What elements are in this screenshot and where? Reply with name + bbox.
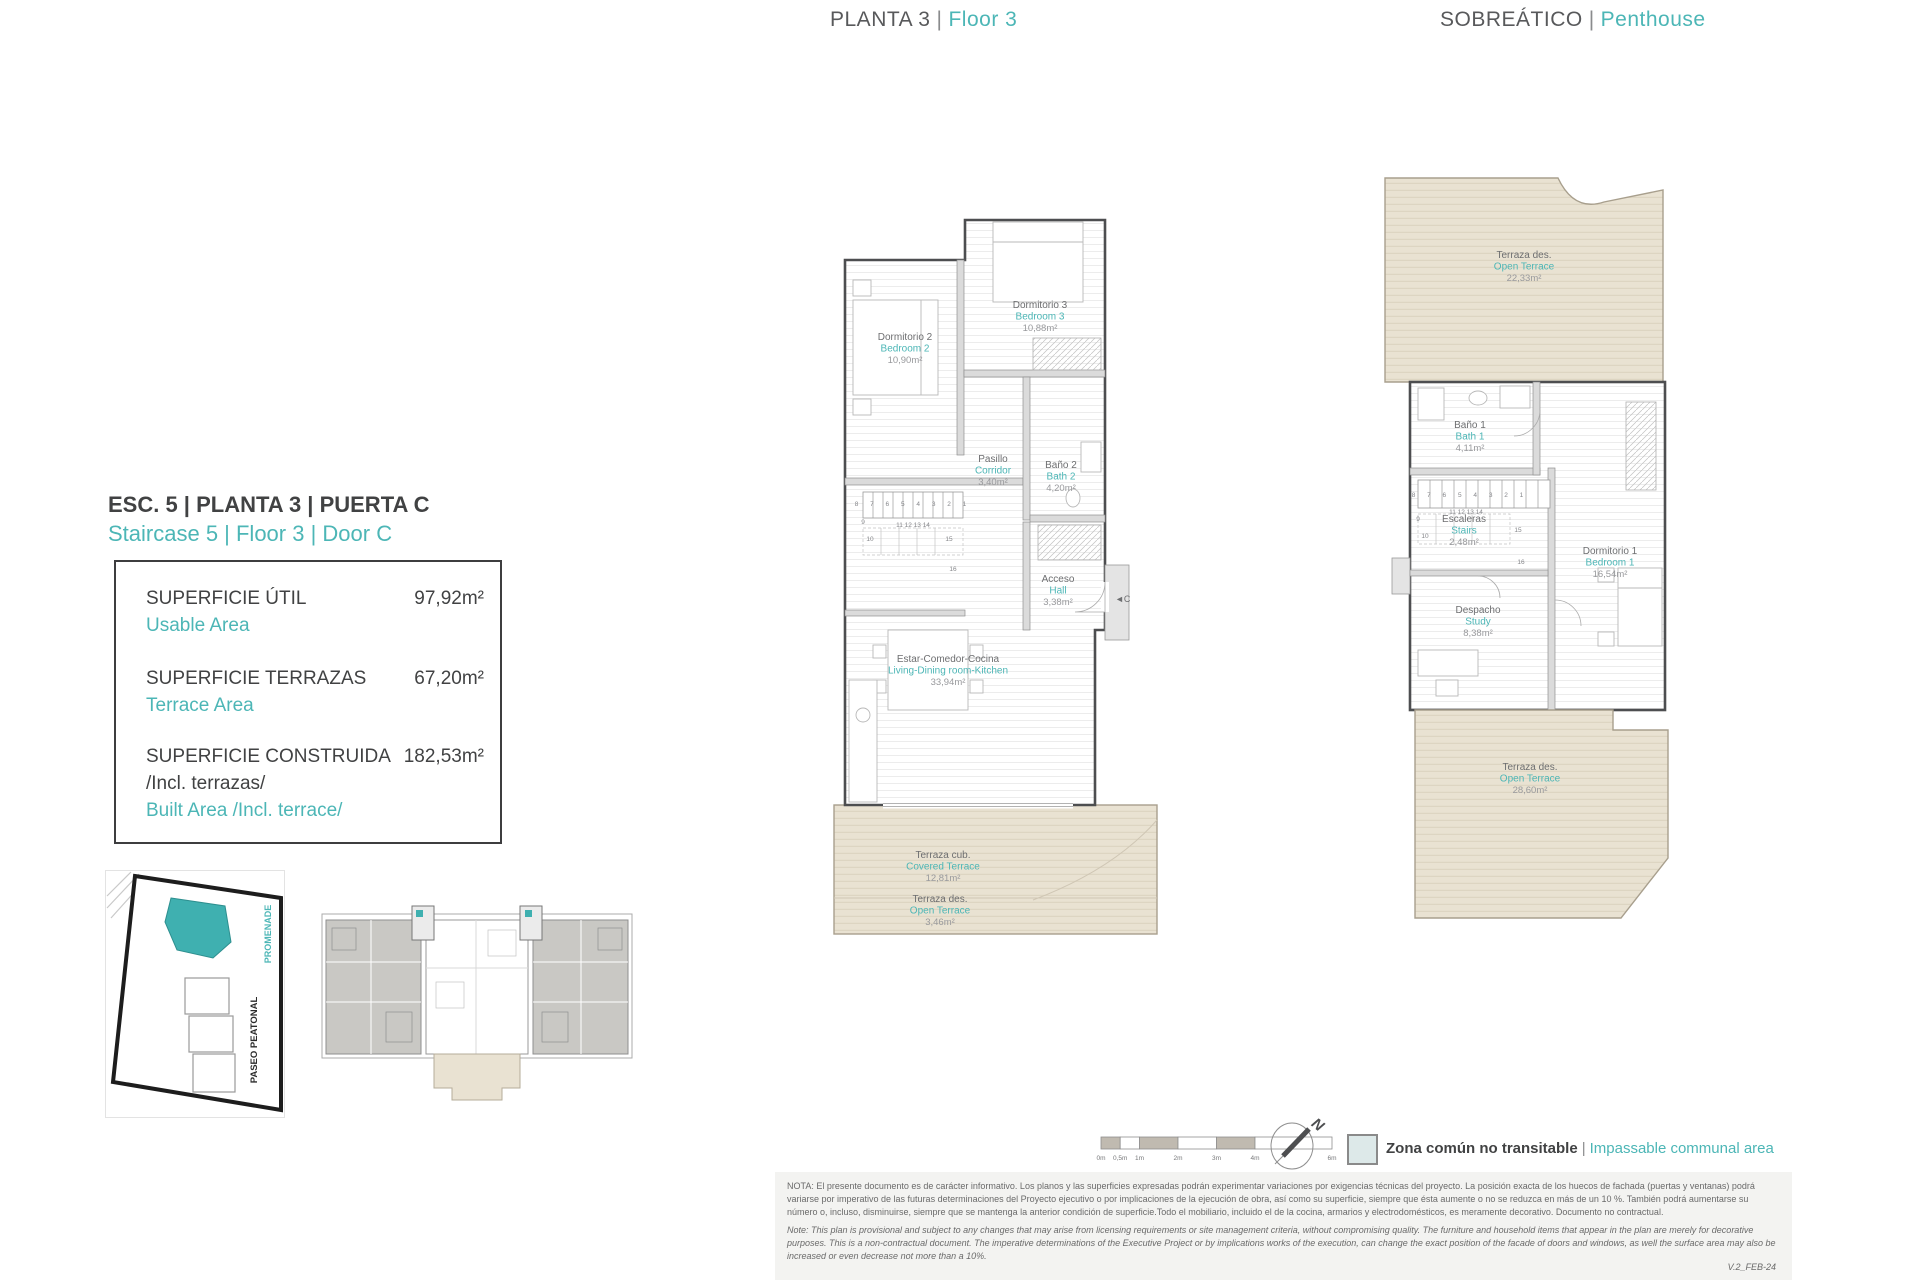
usable-area-label-en: Usable Area: [146, 615, 250, 637]
legend-sep: |: [1578, 1140, 1590, 1157]
disclaimer-box: NOTA: El presente documento es de caráct…: [775, 1172, 1792, 1280]
penthouse-stair-run1-numbers: 8 7 6 5 4 3 2 1: [1412, 492, 1529, 499]
scale-label-3m: 3m: [1212, 1155, 1221, 1162]
room-bottom-terrace-area: 28,60m²: [1513, 785, 1548, 796]
room-corridor-es: Pasillo: [978, 454, 1008, 465]
room-bedroom1-en: Bedroom 1: [1586, 558, 1635, 569]
room-bath2-area: 4,20m²: [1046, 483, 1076, 494]
room-hall-en: Hall: [1049, 586, 1066, 597]
room-top-terrace-en: Open Terrace: [1494, 262, 1555, 273]
room-study-area: 8,38m²: [1463, 628, 1493, 639]
compass-north-label: N: [1308, 1115, 1328, 1136]
key-plan-terrace: [434, 1054, 520, 1100]
penthouse-bottom-terrace: [1415, 710, 1668, 918]
room-bedroom2-area: 10,90m²: [888, 355, 923, 366]
room-bedroom3-es: Dormitorio 3: [1013, 300, 1068, 311]
floor3-stair-run1-numbers: 8 7 6 5 4 3 2 1: [855, 501, 972, 508]
built-area-label-es2: /Incl. terrazas/: [146, 773, 265, 795]
room-open-terrace-es: Terraza des.: [912, 894, 967, 905]
room-bedroom3-en: Bedroom 3: [1016, 312, 1065, 323]
floor3-stair-run2-numbers: 11 12 13 14: [896, 522, 930, 529]
usable-area-value: 97,92m²: [414, 588, 484, 610]
room-bath2-es: Baño 2: [1045, 460, 1077, 471]
room-bath2-en: Bath 2: [1047, 472, 1076, 483]
plan-version: V.2_FEB-24: [1728, 1261, 1776, 1274]
room-study-es: Despacho: [1455, 605, 1500, 616]
room-bedroom2-es: Dormitorio 2: [878, 332, 933, 343]
room-open-terrace-en: Open Terrace: [910, 906, 971, 917]
room-living-es: Estar-Comedor-Cocina: [897, 654, 1000, 665]
title-floor3-sep: |: [931, 8, 949, 31]
floor-plan-floor3: 8 7 6 5 4 3 2 1 9 10 11 12 13 14 15 16 D…: [833, 210, 1173, 940]
title-floor3-en: Floor 3: [948, 8, 1017, 31]
room-bottom-terrace-en: Open Terrace: [1500, 774, 1561, 785]
floor-plan-penthouse: 8 7 6 5 4 3 2 1 9 10 11 12 13 14 15 16 T…: [1378, 170, 1672, 925]
room-bath1-es: Baño 1: [1454, 420, 1486, 431]
disclaimer-note-en: Note: This plan is provisional and subje…: [787, 1224, 1780, 1263]
title-penthouse: SOBREÁTICO|Penthouse: [1440, 8, 1706, 32]
room-covered-terrace-en: Covered Terrace: [906, 862, 980, 873]
floor3-stair-number-15: 15: [945, 536, 953, 543]
terrace-area-value: 67,20m²: [414, 668, 484, 690]
unit-heading-es: ESC. 5 | PLANTA 3 | PUERTA C: [108, 492, 430, 518]
floor3-stair-number-9: 9: [861, 519, 865, 526]
floor3-window: [883, 802, 1073, 809]
room-covered-terrace-area: 12,81m²: [926, 873, 961, 884]
room-bedroom2-en: Bedroom 2: [881, 344, 930, 355]
scale-label-05m: 0,5m: [1113, 1155, 1127, 1162]
room-top-terrace-es: Terraza des.: [1496, 250, 1551, 261]
building-footprint-outline: [185, 978, 235, 1092]
disclaimer-nota-es: NOTA: El presente documento es de caráct…: [787, 1180, 1780, 1219]
legend-label-es: Zona común no transitable: [1386, 1140, 1578, 1157]
room-stairs-en: Stairs: [1451, 526, 1477, 537]
room-bedroom1-area: 16,54m²: [1593, 569, 1628, 580]
room-stairs-es: Escaleras: [1442, 514, 1486, 525]
penthouse-stair-number-9: 9: [1416, 516, 1420, 523]
plan-sheet: PLANTA 3|Floor 3 SOBREÁTICO|Penthouse ES…: [0, 0, 1920, 1280]
paseo-peatonal-label: PASEO PEATONAL: [249, 997, 260, 1084]
penthouse-left-stub: [1392, 558, 1410, 594]
title-penthouse-sep: |: [1583, 8, 1601, 31]
key-plan-unit-left: [326, 920, 421, 1054]
room-bottom-terrace-es: Terraza des.: [1502, 762, 1557, 773]
key-plan-unit-center: [426, 920, 528, 1054]
room-bath1-area: 4,11m²: [1456, 443, 1485, 454]
promenade-label: PROMENADE: [263, 905, 273, 964]
room-hall-area: 3,38m²: [1043, 597, 1073, 608]
scale-label-1m: 1m: [1135, 1155, 1144, 1162]
room-corridor-area: 3,40m²: [978, 477, 1008, 488]
terrace-area-label-en: Terrace Area: [146, 695, 254, 717]
room-study-en: Study: [1465, 617, 1491, 628]
title-penthouse-en: Penthouse: [1601, 8, 1706, 31]
surface-info-box: SUPERFICIE ÚTIL 97,92m² Usable Area SUPE…: [114, 560, 502, 844]
door-c-marker: ◄C: [1115, 594, 1131, 604]
legend-label: Zona común no transitable|Impassable com…: [1386, 1140, 1774, 1157]
key-plan-unit-right: [533, 920, 628, 1054]
building-key-plan: [316, 872, 638, 1118]
unit-heading-en: Staircase 5 | Floor 3 | Door C: [108, 521, 392, 547]
penthouse-stair-number-16: 16: [1517, 559, 1525, 566]
site-location-plan: PROMENADE PASEO PEATONAL: [105, 870, 285, 1118]
legend-label-en: Impassable communal area: [1590, 1140, 1774, 1157]
terrace-area-label-es: SUPERFICIE TERRAZAS: [146, 668, 366, 690]
room-bath1-en: Bath 1: [1456, 432, 1485, 443]
room-bedroom1-es: Dormitorio 1: [1583, 546, 1638, 557]
usable-area-label-es: SUPERFICIE ÚTIL: [146, 588, 306, 610]
floor3-terrace: [834, 805, 1157, 934]
room-hall-es: Acceso: [1042, 574, 1075, 585]
floor3-stair-number-16: 16: [949, 566, 957, 573]
compass-icon: N: [1262, 1108, 1332, 1178]
room-top-terrace-area: 22,33m²: [1507, 273, 1542, 284]
penthouse-stair-number-15: 15: [1514, 527, 1522, 534]
room-living-en: Living-Dining room-Kitchen: [888, 666, 1008, 677]
built-area-label-es: SUPERFICIE CONSTRUIDA: [146, 746, 391, 768]
room-corridor-en: Corridor: [975, 466, 1012, 477]
room-bedroom3-area: 10,88m²: [1023, 323, 1058, 334]
built-area-label-en: Built Area /Incl. terrace/: [146, 800, 342, 822]
room-covered-terrace-es: Terraza cub.: [915, 850, 970, 861]
legend-swatch: [1347, 1134, 1378, 1165]
built-area-value: 182,53m²: [404, 746, 484, 768]
title-penthouse-es: SOBREÁTICO: [1440, 8, 1583, 31]
scale-label-2m: 2m: [1173, 1155, 1182, 1162]
title-floor3: PLANTA 3|Floor 3: [830, 8, 1017, 32]
scale-label-4m: 4m: [1250, 1155, 1259, 1162]
room-stairs-area: 2,48m²: [1449, 537, 1479, 548]
scale-label-0m: 0m: [1096, 1155, 1105, 1162]
title-floor3-es: PLANTA 3: [830, 8, 931, 31]
penthouse-stair-number-10: 10: [1421, 533, 1429, 540]
room-living-area: 33,94m²: [931, 677, 966, 688]
room-open-terrace-area: 3,46m²: [925, 917, 955, 928]
floor3-stair-number-10: 10: [866, 536, 874, 543]
